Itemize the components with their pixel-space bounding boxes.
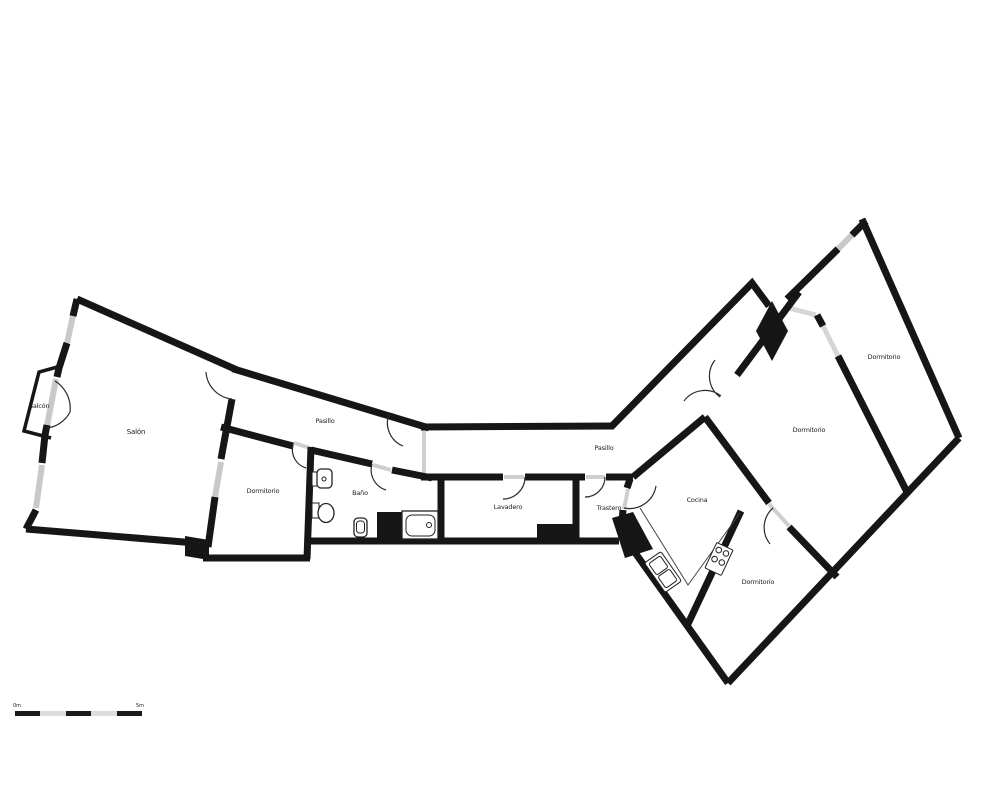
outer-wall-left	[73, 299, 77, 316]
scale-bar-segment	[91, 711, 116, 716]
wall-block	[537, 524, 575, 541]
corridor-top-wall	[421, 426, 614, 427]
wall-toilet-icon	[312, 469, 332, 488]
toilet-icon	[312, 503, 334, 523]
pedestal-sink-icon	[354, 518, 367, 537]
trastero-right-wall	[627, 479, 630, 488]
door-arc-dormitorio-inf	[764, 508, 773, 544]
dormitorio-top-wall	[221, 427, 293, 446]
salon-dormitorio-divider	[208, 497, 215, 547]
scale-bar-segment	[66, 711, 91, 716]
room-label-dormitorio-sup: Dormitorio	[824, 353, 944, 362]
diamond-ne-edge	[862, 219, 959, 438]
dormitorio-divider	[817, 315, 823, 326]
window-segment	[67, 316, 73, 343]
room-label-pasillo-izquierdo: Pasillo	[265, 417, 385, 426]
scale-bar-segment	[15, 711, 40, 716]
door-arc-lavadero	[503, 477, 525, 499]
room-label-bano: Baño	[300, 489, 420, 498]
dormitorio-divider-low	[789, 527, 837, 577]
salon-divider-stub	[235, 369, 236, 373]
scale-bar-segment	[40, 711, 65, 716]
wall-block	[377, 512, 403, 540]
windows-group	[36, 231, 856, 526]
walls-group	[24, 219, 959, 683]
room-label-balcon: Balcón	[0, 402, 99, 411]
room-label-trastero: Trastero	[549, 504, 669, 513]
door-threshold	[769, 504, 789, 526]
stove-icon	[705, 543, 733, 576]
room-label-dormitorio-centro: Dormitorio	[749, 426, 869, 435]
door-arc-salon	[206, 372, 232, 399]
scale-label-end: 5m	[136, 703, 144, 709]
door-arc-dormitorio	[292, 445, 306, 468]
scale-label-start: 0m	[13, 703, 21, 709]
door-arc-trastero	[585, 477, 605, 497]
scale-bar-segment	[117, 711, 142, 716]
window-segment	[823, 326, 838, 356]
floor-plan-svg	[0, 0, 1000, 800]
diamond-se-edge	[728, 438, 959, 683]
room-label-cocina: Cocina	[637, 496, 757, 505]
outer-wall-left	[42, 425, 47, 463]
diamond-nw-edge	[787, 249, 838, 299]
outer-wall-left	[57, 343, 67, 377]
window-segment	[36, 465, 42, 508]
dormitorio-divider	[838, 356, 907, 492]
room-label-pasillo-central: Pasillo	[544, 444, 664, 453]
fixtures-group	[312, 469, 740, 592]
outer-wall-top-left	[77, 299, 429, 428]
bano-top-wall	[311, 450, 372, 464]
room-label-dormitorio-inf: Dormitorio	[698, 578, 818, 587]
scale-bar	[15, 711, 142, 716]
floor-plan-page: Balcón Salón Pasillo Dormitorio Baño Lav…	[0, 0, 1000, 800]
step-block	[185, 536, 209, 560]
salon-bottom-wall	[26, 529, 196, 543]
bathtub-icon	[402, 511, 438, 539]
room-label-salon: Salón	[76, 428, 196, 437]
door-threshold	[373, 465, 391, 470]
corridor-top-diagonal	[611, 283, 769, 427]
